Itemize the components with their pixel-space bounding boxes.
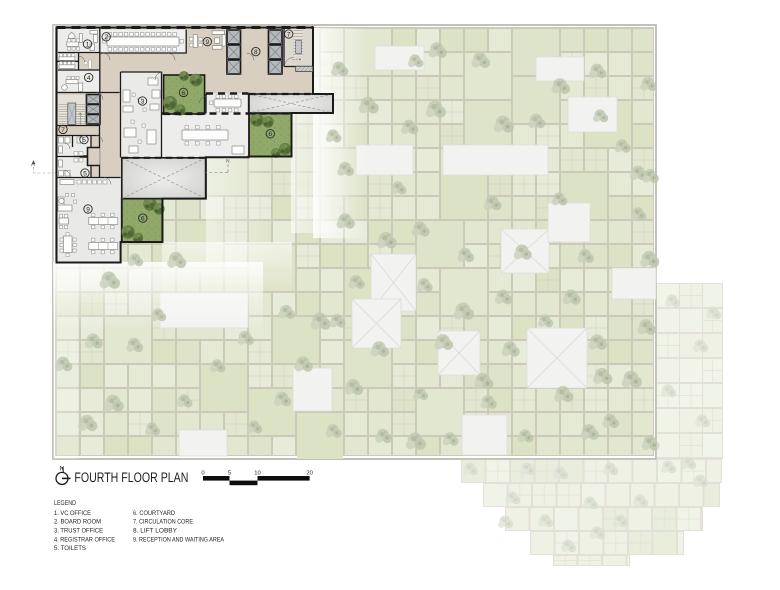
svg-text:9. RECEPTION AND WAITING AREA: 9. RECEPTION AND WAITING AREA xyxy=(133,536,225,543)
svg-text:6: 6 xyxy=(141,216,145,223)
svg-text:8. LIFT LOBBY: 8. LIFT LOBBY xyxy=(133,528,178,535)
svg-text:1. VC OFFICE: 1. VC OFFICE xyxy=(54,510,92,517)
svg-text:4. REGISTRAR OFFICE: 4. REGISTRAR OFFICE xyxy=(54,536,116,543)
svg-text:7: 7 xyxy=(61,127,65,134)
svg-text:10: 10 xyxy=(254,470,260,477)
svg-text:3. TRUST OFFICE: 3. TRUST OFFICE xyxy=(54,528,104,535)
svg-text:4: 4 xyxy=(87,75,91,82)
svg-text:5: 5 xyxy=(83,170,87,177)
svg-text:8: 8 xyxy=(254,49,258,56)
svg-text:N: N xyxy=(60,466,65,473)
svg-text:1: 1 xyxy=(86,41,90,48)
svg-text:3: 3 xyxy=(141,98,145,105)
svg-text:5: 5 xyxy=(82,137,86,144)
svg-text:6: 6 xyxy=(268,131,272,138)
svg-text:N: N xyxy=(226,159,230,165)
svg-text:0: 0 xyxy=(201,470,204,477)
svg-text:5. TOILETS: 5. TOILETS xyxy=(54,545,87,552)
svg-text:20: 20 xyxy=(306,470,312,477)
svg-text:2: 2 xyxy=(104,34,108,41)
svg-text:6: 6 xyxy=(182,90,186,97)
svg-text:7: 7 xyxy=(287,31,291,38)
svg-text:5: 5 xyxy=(228,471,231,477)
svg-text:6. COURTYARD: 6. COURTYARD xyxy=(133,510,175,517)
svg-text:9: 9 xyxy=(205,39,209,46)
svg-text:7. CIRCULATION CORE: 7. CIRCULATION CORE xyxy=(133,519,194,526)
svg-text:LEGEND: LEGEND xyxy=(54,500,76,507)
svg-text:9: 9 xyxy=(86,206,90,213)
svg-text:FOURTH FLOOR PLAN: FOURTH FLOOR PLAN xyxy=(74,470,188,485)
svg-text:2. BOARD ROOM: 2. BOARD ROOM xyxy=(54,519,101,526)
